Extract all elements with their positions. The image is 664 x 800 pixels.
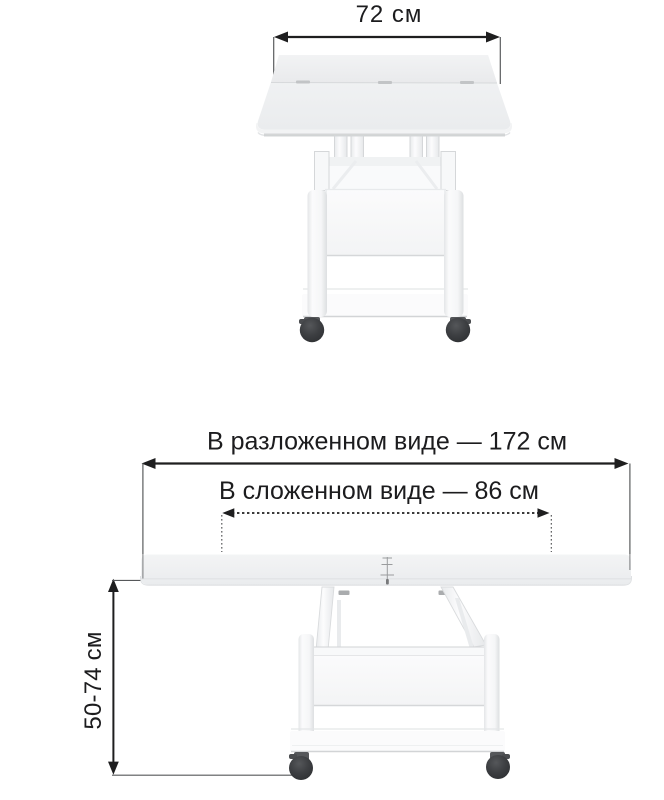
svg-text:В разложенном виде — 172 см: В разложенном виде — 172 см [207, 428, 567, 456]
svg-text:72 см: 72 см [356, 1, 423, 28]
svg-text:50-74 см: 50-74 см [80, 631, 107, 729]
svg-text:В сложенном виде — 86 см: В сложенном виде — 86 см [219, 477, 539, 505]
